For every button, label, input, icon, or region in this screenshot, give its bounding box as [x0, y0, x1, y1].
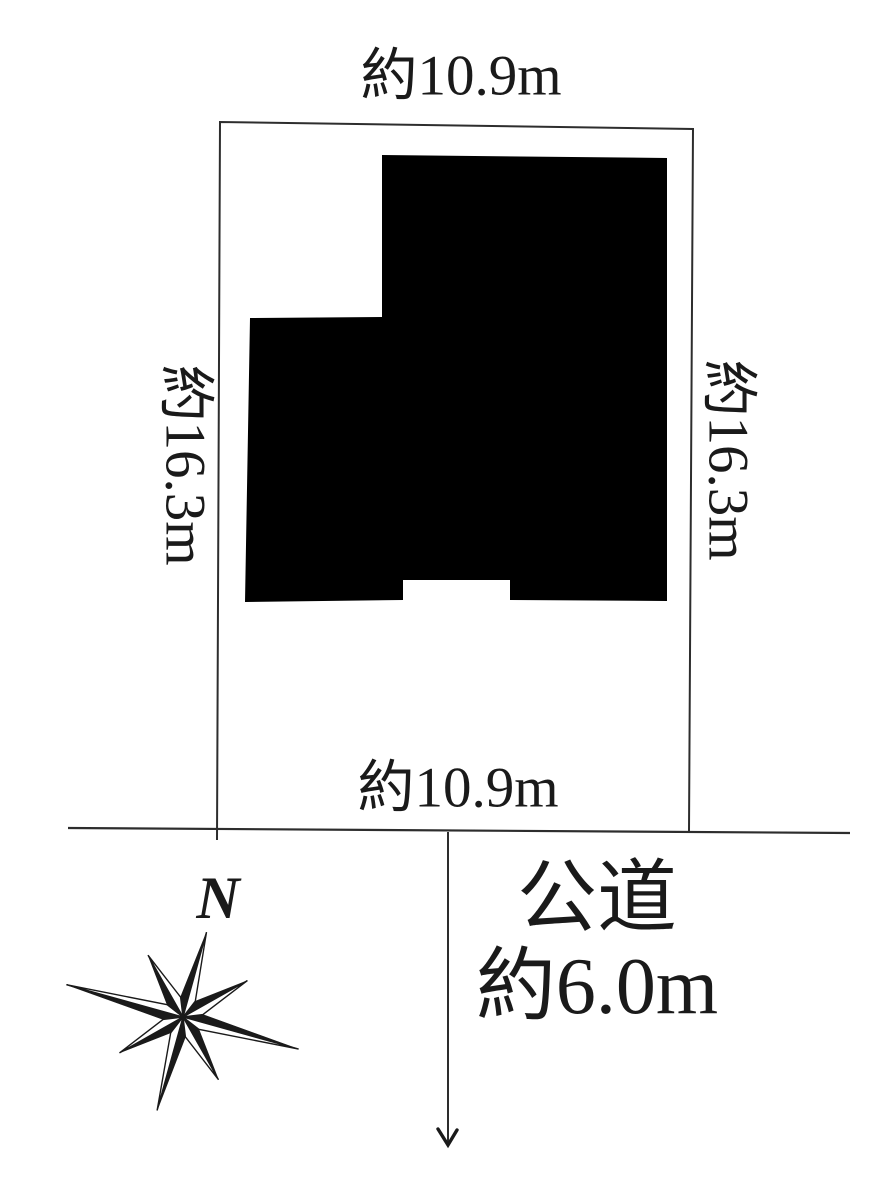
building-footprint	[245, 155, 667, 602]
road-edge-line	[68, 828, 850, 833]
dimension-label-left: 約16.3m	[157, 364, 214, 565]
site-plan-drawing	[0, 0, 889, 1200]
compass-rose-icon	[66, 932, 298, 1110]
dimension-label-right: 約16.3m	[700, 359, 757, 560]
site-plan: 約10.9m 約16.3m 約16.3m 約10.9m 公道 約6.0m N	[0, 0, 889, 1200]
dimension-label-top: 約10.9m	[360, 48, 561, 105]
dimension-label-bottom: 約10.9m	[357, 760, 558, 817]
compass-north-label: N	[196, 868, 239, 928]
road-width: 約6.0m	[476, 943, 718, 1031]
road-direction-arrow	[438, 832, 457, 1145]
road-label: 公道 約6.0m	[476, 855, 718, 1031]
road-name: 公道	[476, 855, 718, 943]
